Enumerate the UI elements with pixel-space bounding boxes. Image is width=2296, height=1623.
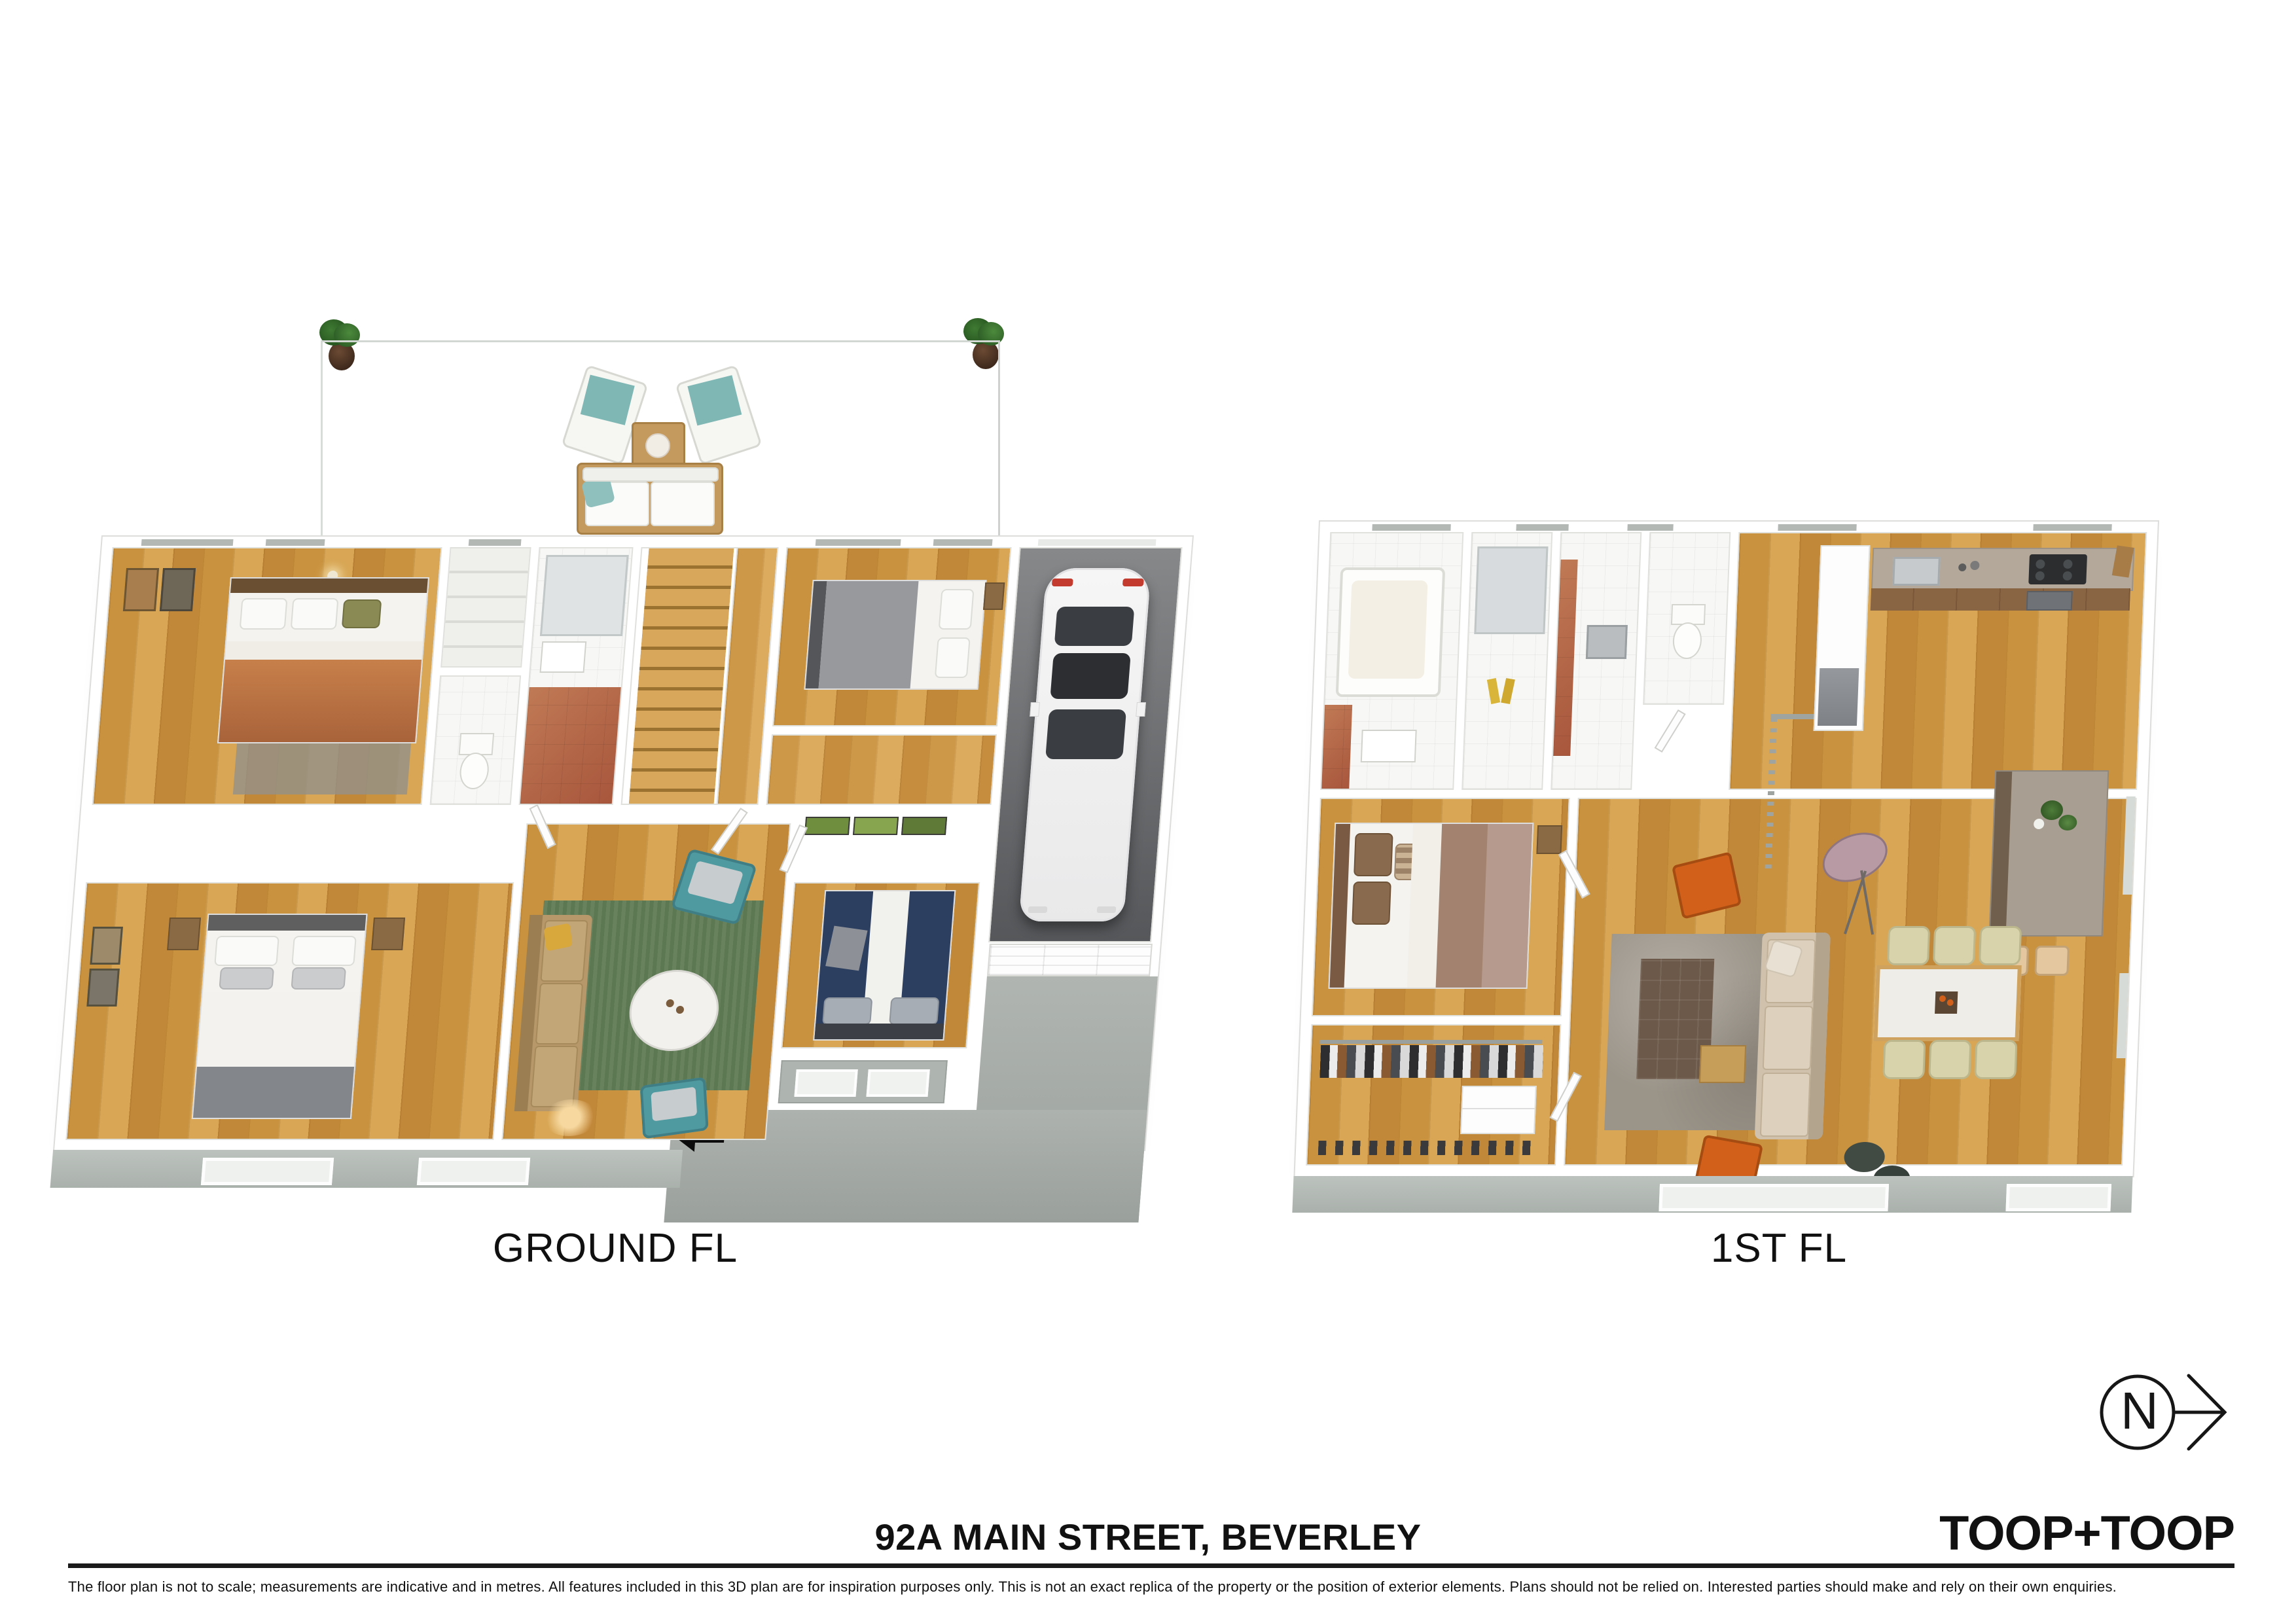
burner bbox=[2063, 560, 2073, 569]
garage-opening bbox=[1038, 539, 1157, 546]
exterior-wall-skirt bbox=[50, 1150, 683, 1188]
tripod-floor-lamp bbox=[1818, 834, 1901, 939]
windshield bbox=[1045, 709, 1126, 759]
vanity bbox=[539, 641, 586, 673]
pillow bbox=[291, 598, 339, 630]
window-slot bbox=[1778, 524, 1856, 531]
dining-chair bbox=[1882, 1040, 1926, 1079]
dining-chair bbox=[1933, 926, 1976, 965]
fridge bbox=[1818, 668, 1859, 726]
room-bedroom-2 bbox=[774, 548, 1010, 725]
porch-window bbox=[866, 1069, 929, 1097]
bathtub bbox=[1336, 567, 1446, 697]
headboard bbox=[814, 1024, 944, 1039]
sofa-cushion bbox=[535, 983, 583, 1044]
double-bed bbox=[1328, 823, 1534, 989]
kitchen-sink bbox=[1892, 557, 1941, 586]
ground-floor-label: GROUND FL bbox=[190, 1225, 1041, 1272]
dining-chair bbox=[1928, 1040, 1971, 1079]
oven bbox=[2026, 591, 2073, 611]
burner bbox=[2035, 571, 2045, 580]
grey-pillow bbox=[291, 967, 346, 990]
shower bbox=[1474, 546, 1548, 634]
pillow bbox=[935, 637, 971, 678]
tub-basin bbox=[1348, 580, 1428, 679]
door-leaf bbox=[1655, 709, 1686, 753]
double-bed bbox=[217, 577, 429, 743]
art-frame bbox=[123, 568, 159, 611]
sofa-back bbox=[583, 467, 719, 482]
grey-pillow bbox=[219, 967, 274, 990]
room-wc bbox=[431, 677, 520, 804]
decor bbox=[675, 1006, 684, 1014]
duvet bbox=[819, 581, 919, 688]
room-shower bbox=[1463, 533, 1551, 789]
double-bed bbox=[804, 580, 986, 690]
floorplan-sheet: GROUND FL 1ST FL N 92A MAIN STREET, BEVE… bbox=[0, 0, 2296, 1623]
art-frame bbox=[804, 817, 850, 835]
lamp-leg bbox=[1860, 870, 1874, 935]
art-frame bbox=[86, 969, 120, 1007]
headboard bbox=[230, 579, 428, 593]
hanging-clothes bbox=[1319, 1045, 1543, 1078]
window-slot bbox=[1372, 524, 1450, 531]
window-slot bbox=[2033, 524, 2111, 531]
teal-armchair bbox=[640, 1077, 709, 1139]
nightstand bbox=[1536, 825, 1562, 854]
skirt-window bbox=[1659, 1184, 1889, 1211]
sheet-fold bbox=[225, 641, 423, 660]
pillow bbox=[214, 936, 279, 966]
laundry-sink bbox=[1586, 625, 1628, 659]
taillight bbox=[1122, 579, 1144, 586]
room-bathroom bbox=[520, 548, 632, 804]
north-arrow-icon bbox=[2096, 1369, 2233, 1455]
pillow bbox=[822, 997, 872, 1025]
skirt-window bbox=[417, 1158, 530, 1185]
window-slot bbox=[1627, 524, 1673, 531]
terracotta-wall bbox=[1553, 560, 1578, 756]
shower bbox=[540, 555, 629, 636]
cooktop bbox=[2028, 554, 2087, 584]
duvet bbox=[219, 660, 422, 742]
wall-art-frames bbox=[123, 568, 196, 611]
dining-table bbox=[1873, 965, 2021, 1041]
jar bbox=[1958, 563, 1966, 571]
room-linen bbox=[442, 548, 529, 666]
plant-foliage bbox=[2040, 800, 2063, 820]
sunroof bbox=[1050, 653, 1131, 699]
agency-logo: TOOP+TOOP bbox=[1939, 1505, 2234, 1561]
dining-chair bbox=[1887, 926, 1930, 965]
footer-divider bbox=[68, 1563, 2234, 1568]
art-frame bbox=[901, 817, 947, 835]
skirt-window bbox=[201, 1158, 334, 1185]
patio bbox=[321, 340, 1000, 537]
room-master-bedroom bbox=[67, 883, 512, 1139]
plant-foliage bbox=[2058, 815, 2077, 830]
sofa bbox=[1755, 933, 1831, 1139]
room-laundry bbox=[1552, 533, 1640, 789]
sofa-cushion bbox=[1760, 1073, 1811, 1137]
room-living bbox=[503, 825, 789, 1139]
exterior-wall-skirt bbox=[1292, 1176, 2132, 1213]
vase bbox=[2034, 819, 2045, 829]
decor bbox=[1946, 999, 1953, 1006]
room-bedroom-3 bbox=[782, 883, 978, 1047]
clothes-rail bbox=[1319, 1040, 1542, 1044]
white-car bbox=[1019, 568, 1151, 921]
window-slot bbox=[469, 539, 522, 546]
window-slot bbox=[933, 539, 993, 546]
room-master-bedroom bbox=[1313, 799, 1569, 1015]
hallway bbox=[768, 736, 996, 804]
mauve-throw bbox=[1482, 824, 1533, 988]
brown-pillow bbox=[1354, 833, 1393, 876]
toilet bbox=[458, 753, 490, 789]
toilet bbox=[1672, 622, 1702, 659]
kitchen-cabinets bbox=[1871, 588, 2130, 611]
terracotta-floor bbox=[520, 687, 621, 804]
teal-cushion bbox=[581, 375, 635, 425]
room-wc bbox=[1644, 533, 1729, 704]
cutting-board bbox=[2112, 545, 2134, 577]
landscape-triptych bbox=[804, 817, 947, 835]
yellow-towel bbox=[1487, 678, 1500, 704]
wall-art-frames bbox=[86, 927, 123, 1007]
burner bbox=[2062, 571, 2072, 580]
shoe-row bbox=[1318, 1141, 1535, 1155]
room-bedroom-1 bbox=[94, 548, 441, 804]
double-bed bbox=[192, 914, 368, 1119]
tray bbox=[645, 433, 670, 458]
vanity bbox=[1361, 730, 1417, 762]
pillow bbox=[939, 589, 975, 630]
dining-chair bbox=[1979, 926, 2022, 965]
brown-pillow bbox=[1352, 882, 1391, 925]
north-compass: N bbox=[2096, 1369, 2233, 1455]
art-frame bbox=[160, 568, 196, 611]
outdoor-armchair bbox=[675, 365, 762, 465]
yellow-towel bbox=[1501, 678, 1515, 704]
centerpiece bbox=[1935, 991, 1958, 1014]
taillight bbox=[1051, 579, 1073, 586]
pillow bbox=[240, 598, 288, 630]
sofa-cushion bbox=[1763, 1006, 1814, 1070]
porch-window bbox=[794, 1069, 857, 1097]
room-bathroom bbox=[1321, 533, 1462, 789]
sofa-cushion bbox=[530, 1046, 578, 1107]
ground-floor-plan bbox=[53, 535, 1194, 1151]
toilet-cistern bbox=[459, 733, 495, 755]
terracotta-floor bbox=[1321, 705, 1352, 789]
outdoor-sofa bbox=[577, 463, 723, 535]
window-slot bbox=[266, 539, 325, 546]
pouf bbox=[1844, 1142, 1886, 1172]
art-frame bbox=[90, 927, 123, 965]
decor bbox=[1939, 995, 1946, 1002]
side-mirror bbox=[1030, 702, 1040, 717]
headlight bbox=[1028, 906, 1047, 913]
first-floor-label: 1ST FL bbox=[1354, 1225, 2204, 1272]
kitchen-counter bbox=[1871, 548, 2135, 591]
nightstand bbox=[983, 582, 1005, 610]
window-slot bbox=[141, 539, 234, 546]
headlight bbox=[1097, 906, 1117, 913]
teal-cushion bbox=[687, 375, 742, 425]
disclaimer-text: The floor plan is not to scale; measurem… bbox=[68, 1578, 2234, 1596]
nightstand bbox=[371, 918, 405, 950]
shelf-unit bbox=[1460, 1086, 1537, 1134]
side-table bbox=[1699, 1045, 1746, 1083]
garage bbox=[990, 548, 1181, 941]
north-letter: N bbox=[2121, 1381, 2159, 1441]
headboard bbox=[207, 915, 366, 931]
bar-stool bbox=[2034, 946, 2070, 976]
double-bed bbox=[813, 890, 956, 1041]
pillow bbox=[291, 936, 357, 966]
rear-window bbox=[1054, 607, 1135, 645]
art-frame bbox=[853, 817, 899, 835]
room-walk-in-robe bbox=[1307, 1026, 1560, 1164]
island-side bbox=[1990, 772, 2013, 935]
kitchen-tall-unit bbox=[1814, 545, 1871, 731]
skirt-window bbox=[2005, 1184, 2111, 1211]
burner bbox=[2036, 560, 2045, 569]
pillow bbox=[889, 997, 939, 1025]
dining-chair bbox=[1974, 1040, 2017, 1079]
blanket bbox=[193, 1067, 354, 1118]
window-slot bbox=[816, 539, 901, 546]
porch-wall bbox=[778, 1060, 948, 1103]
side-mirror bbox=[1136, 702, 1146, 717]
headboard bbox=[1330, 824, 1351, 988]
garage-door bbox=[987, 944, 1153, 976]
jar bbox=[1970, 561, 1980, 570]
decor bbox=[666, 999, 674, 1007]
rug bbox=[233, 738, 412, 794]
olive-pillow bbox=[342, 599, 382, 628]
window-slot bbox=[1516, 524, 1568, 531]
first-floor-plan bbox=[1293, 520, 2159, 1177]
kitchen-island bbox=[1989, 770, 2109, 936]
sofa-cushion bbox=[651, 482, 715, 526]
nightstand bbox=[167, 918, 201, 950]
